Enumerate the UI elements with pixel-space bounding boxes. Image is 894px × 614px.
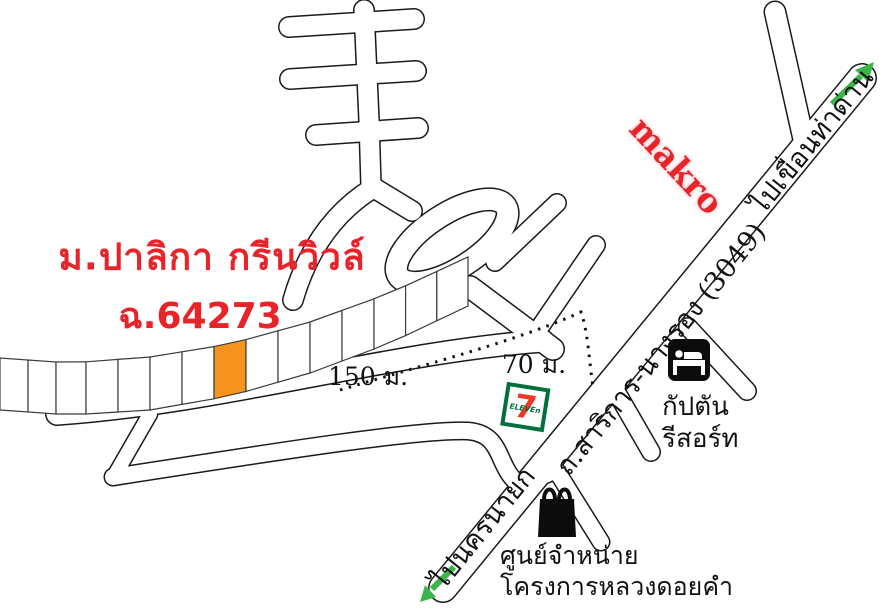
land-plot [56,362,86,414]
land-plot [182,347,214,405]
resort-label: กัปตัน รีสอร์ท [662,392,739,455]
seven-eleven-icon: 7 ELEVEn [498,381,551,438]
shop-label: ศูนย์จำหน่าย โครงการหลวงดอยคำ [500,541,733,602]
land-plot [118,357,150,412]
distance-70m-label: 70 ม. [502,350,566,381]
land-plot [278,322,310,382]
resort-label-line1: กัปตัน [662,392,739,424]
land-plot [28,360,56,414]
shop-label-line2: โครงการหลวงดอยคำ [500,572,733,603]
land-plot [342,299,374,361]
shopping-bag-icon [534,484,580,546]
project-name-label: ม.ปาลิกา กรีนวิวล์ [58,234,365,279]
land-plot [374,286,406,349]
highlighted-plot [214,340,246,399]
land-plot [0,358,28,412]
land-plot [86,359,118,414]
land-plot [246,331,278,392]
project-ref-number: ฉ.64273 [118,295,281,339]
map-canvas: ม.ปาลิกา กรีนวิวล์ ฉ.64273 makro ถ.สาริก… [0,0,894,614]
resort-label-line2: รีสอร์ท [662,424,739,456]
land-plot [150,352,182,410]
distance-150m-label: 150 ม. [328,362,408,393]
bed-icon [668,339,710,385]
